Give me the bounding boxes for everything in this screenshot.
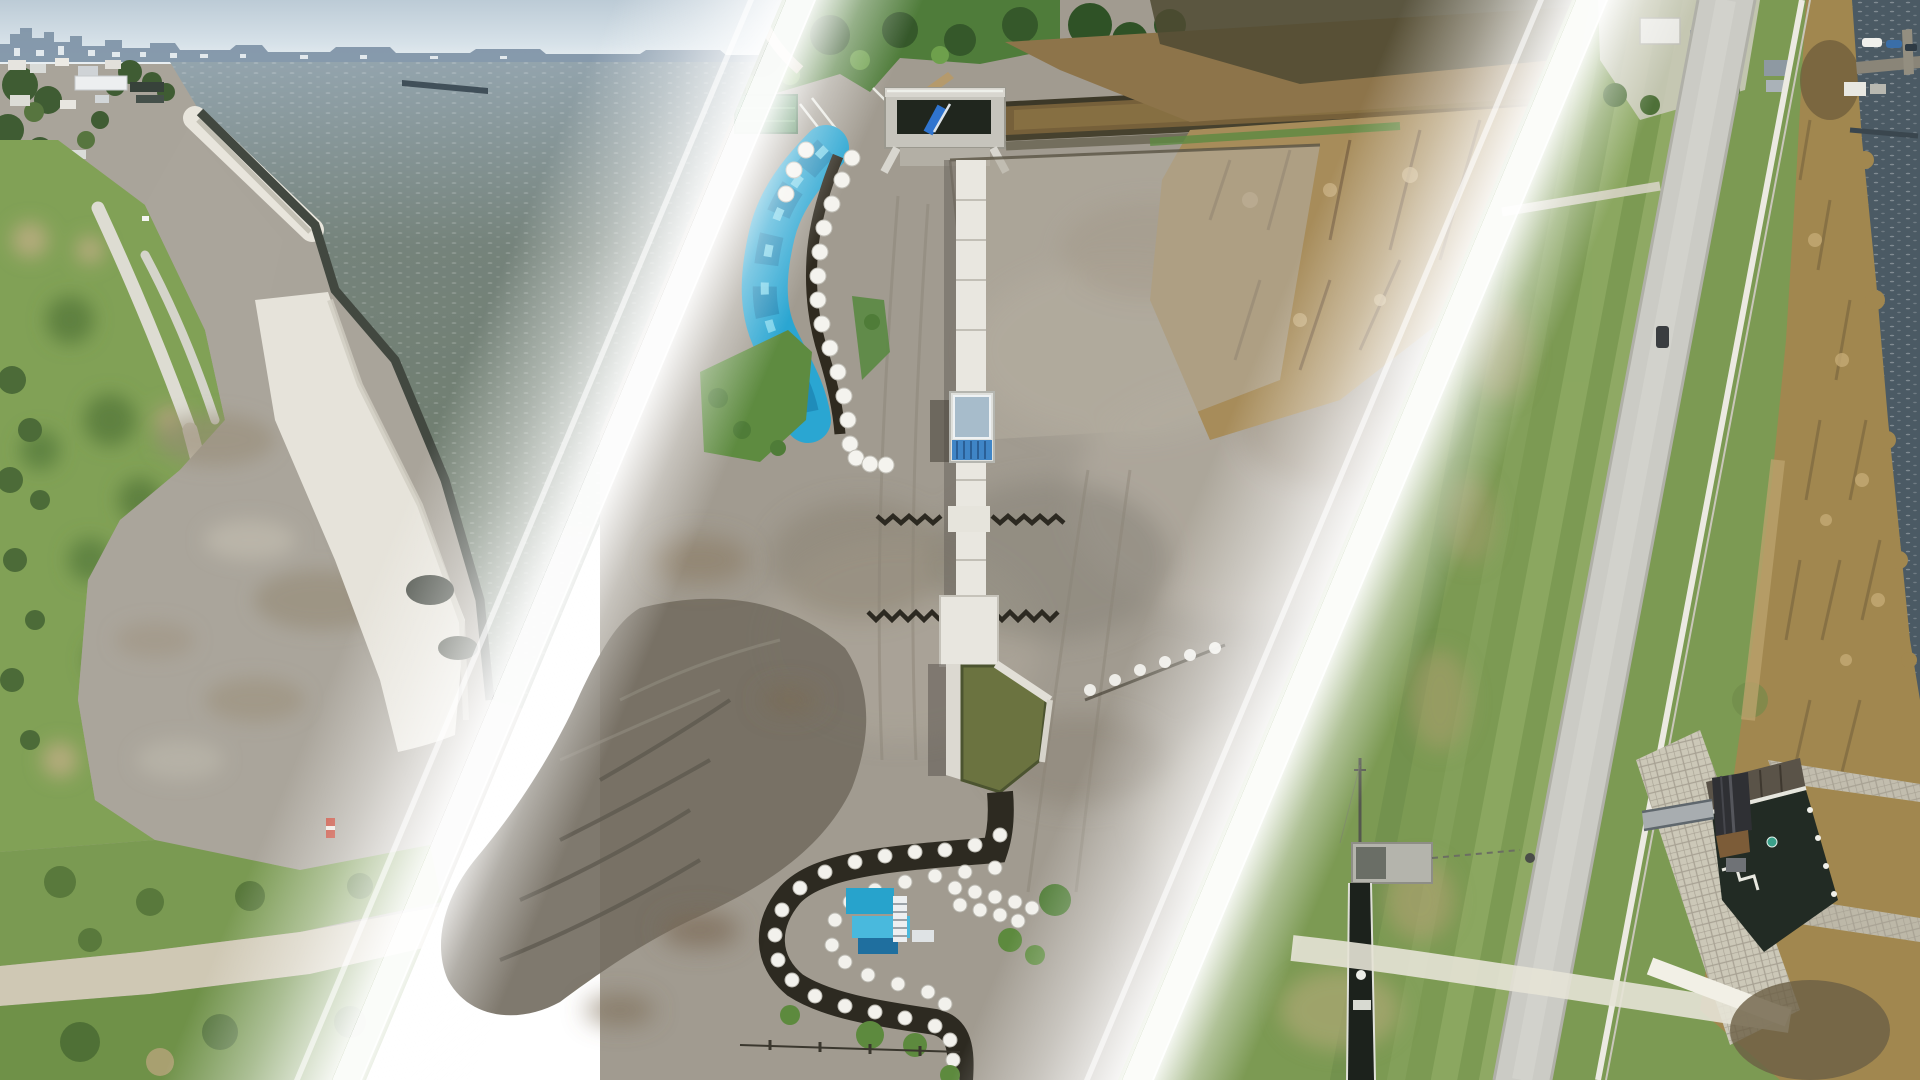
white-car <box>142 216 149 221</box>
greenhouse <box>130 82 164 92</box>
gauge-house <box>930 392 994 462</box>
car <box>1656 326 1669 348</box>
red-marker <box>326 818 335 838</box>
waterside-building <box>1844 82 1866 96</box>
boat-dark <box>1905 44 1917 51</box>
photo-collage <box>0 0 1920 1080</box>
pile-cap-2 <box>940 596 998 666</box>
brush-dark <box>1730 980 1890 1080</box>
buoy <box>1767 837 1777 847</box>
green-roof-shed <box>735 95 797 133</box>
person-dot <box>1525 853 1535 863</box>
boat-white <box>1862 38 1882 47</box>
boat-blue <box>1886 40 1902 48</box>
pile-cap-1 <box>948 506 990 532</box>
rock-pile <box>406 575 454 605</box>
